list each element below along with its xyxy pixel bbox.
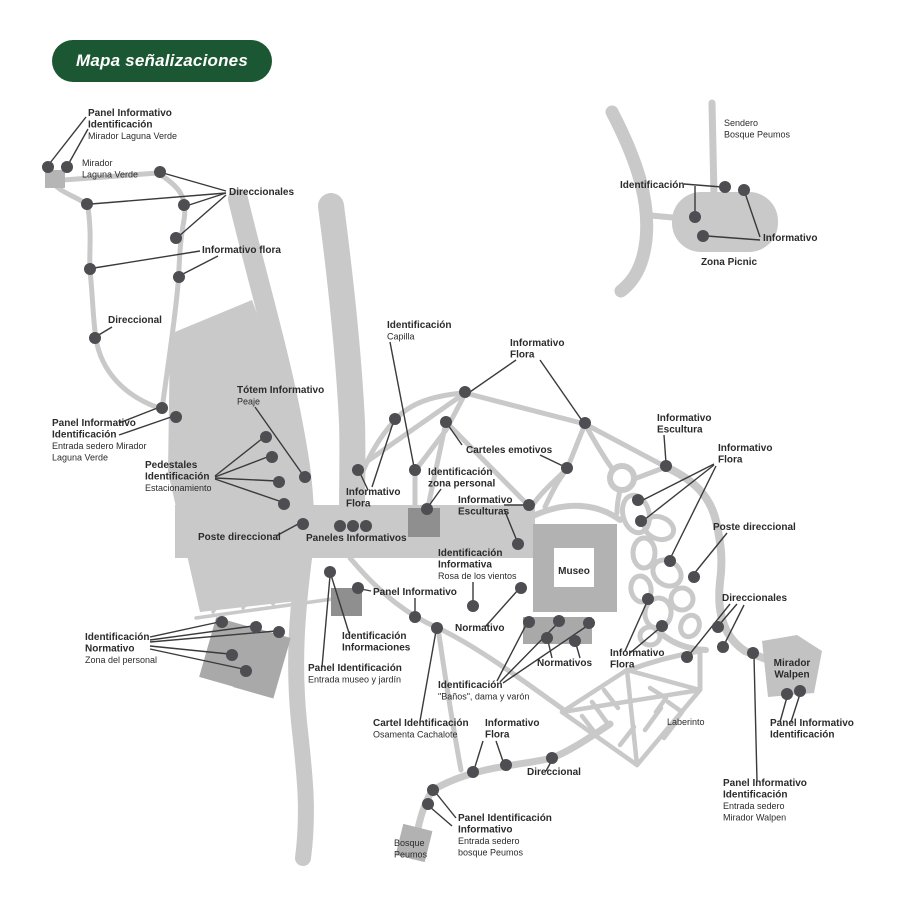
trail-laguna-verde-west xyxy=(57,187,162,409)
signage-marker-dot xyxy=(512,538,524,550)
signage-marker-dot xyxy=(216,616,228,628)
leader-line xyxy=(540,455,563,466)
signage-marker-dot xyxy=(635,515,647,527)
signage-marker-dot xyxy=(781,688,793,700)
label-identificacion-informaciones-line-2: Informaciones xyxy=(342,643,411,654)
label-panel-entrada-sedero-mirador-laguna-verde-line-2: Identificación xyxy=(52,430,116,441)
label-panel-informativo-mirador-laguna-verde-line-1: Panel Informativo xyxy=(88,108,172,119)
label-panel-informativo-centro-line-1: Panel Informativo xyxy=(373,587,457,598)
leader-line xyxy=(50,117,86,163)
signage-marker-dot xyxy=(324,566,336,578)
signage-marker-dot xyxy=(688,571,700,583)
trail-sendero-bosque-peumos xyxy=(712,103,714,196)
label-panel-entrada-sedero-bosque-peumos-line-3: Entrada sedero xyxy=(458,836,520,846)
map-name-zona-picnic-line-1: Zona Picnic xyxy=(701,257,758,268)
label-panel-informativo-mirador-laguna-verde-line-2: Identificación xyxy=(88,120,152,131)
signage-marker-dot xyxy=(173,271,185,283)
signage-marker-dot xyxy=(409,611,421,623)
signage-marker-dot xyxy=(515,582,527,594)
label-totem-informativo-peaje-line-1: Tótem Informativo xyxy=(237,385,324,396)
label-panel-entrada-sedero-mirador-laguna-verde-line-1: Panel Informativo xyxy=(52,418,136,429)
label-informativo-escultura-line-2: Escultura xyxy=(657,425,703,436)
signage-marker-dot xyxy=(260,431,272,443)
map-canvas: Mapa señalizaciones xyxy=(0,0,909,900)
label-identificacion-informativa-rosa-line-2: Informativa xyxy=(438,560,492,571)
label-identificacion-picnic-line-1: Identificación xyxy=(620,180,684,191)
label-direccionales-sureste-line-1: Direccionales xyxy=(722,593,787,604)
signage-marker-dot xyxy=(656,620,668,632)
label-paneles-informativos-line-1: Paneles Informativos xyxy=(306,533,407,544)
signage-marker-dot xyxy=(266,451,278,463)
roundabout xyxy=(610,466,634,490)
label-panel-informativo-walpen-line-1: Panel Informativo xyxy=(770,718,854,729)
signage-marker-dot xyxy=(297,518,309,530)
map-name-sendero-bosque-peumos-line-2: Bosque Peumos xyxy=(724,130,791,140)
leader-line xyxy=(474,741,483,770)
signage-marker-dot xyxy=(89,332,101,344)
signage-marker-dot xyxy=(553,615,565,627)
signage-marker-dot xyxy=(632,494,644,506)
label-informativo-escultura-line-1: Informativo xyxy=(657,413,711,424)
label-panel-identificacion-entrada-museo-line-1: Panel Identificación xyxy=(308,663,402,674)
signage-marker-dot xyxy=(352,582,364,594)
leader-line xyxy=(181,256,218,275)
label-direccional-oeste-line-1: Direccional xyxy=(108,315,162,326)
signage-marker-dot xyxy=(226,649,238,661)
leader-line xyxy=(485,590,518,627)
leader-line xyxy=(91,193,226,204)
map-name-mirador-laguna-verde-line-2: Laguna Verde xyxy=(82,170,138,180)
buildings-layer xyxy=(45,170,822,862)
signage-marker-dot xyxy=(334,520,346,532)
signage-marker-dot xyxy=(240,665,252,677)
map-name-museo-line-1: Museo xyxy=(558,566,590,577)
label-informativo-flora-oeste-line-2: Flora xyxy=(346,499,371,510)
label-identificacion-informativa-rosa-line-3: Rosa de los vientos xyxy=(438,571,517,581)
label-informativo-flora-sur-line-2: Flora xyxy=(485,730,510,741)
signage-marker-dot xyxy=(719,181,731,193)
signage-marker-dot xyxy=(81,198,93,210)
leader-line xyxy=(420,631,436,721)
signage-marker-dot xyxy=(389,413,401,425)
label-informativo-flora-capilla-line-1: Informativo xyxy=(510,338,564,349)
label-informativo-picnic-line-1: Informativo xyxy=(763,233,817,244)
label-panel-entrada-sedero-walpen-line-2: Identificación xyxy=(723,790,787,801)
signage-marker-dot xyxy=(689,211,701,223)
signage-marker-dot xyxy=(431,622,443,634)
signage-marker-dot xyxy=(583,617,595,629)
label-informativo-flora-capilla-line-2: Flora xyxy=(510,350,535,361)
signage-marker-dot xyxy=(579,417,591,429)
map-name-mirador-walpen-line-1: Mirador xyxy=(774,658,811,669)
signage-marker-dot xyxy=(360,520,372,532)
signage-marker-dot xyxy=(717,641,729,653)
map-name-bosque-peumos-line-2: Peumos xyxy=(394,850,428,860)
label-direccional-sur-line-1: Direccional xyxy=(527,767,581,778)
signage-marker-dot xyxy=(500,759,512,771)
signage-marker-dot xyxy=(546,752,558,764)
signage-marker-dot xyxy=(523,499,535,511)
map-name-mirador-laguna-verde-line-1: Mirador xyxy=(82,158,113,168)
label-panel-entrada-sedero-walpen-line-1: Panel Informativo xyxy=(723,778,807,789)
signage-marker-dot xyxy=(170,232,182,244)
signage-marker-dot xyxy=(569,635,581,647)
signage-marker-dot xyxy=(459,386,471,398)
label-identificacion-banos-line-1: Identificación xyxy=(438,680,502,691)
label-identificacion-banos-line-2: "Baños", dama y varón xyxy=(438,692,529,702)
label-pedestales-estacionamiento-line-3: Estacionamiento xyxy=(145,483,212,493)
map-name-sendero-bosque-peumos-line-1: Sendero xyxy=(724,118,758,128)
label-informativo-flora-esculturas-zona-line-2: Flora xyxy=(610,660,635,671)
label-poste-direccional-este-line-1: Poste direccional xyxy=(713,522,796,533)
signage-marker-dot xyxy=(440,416,452,428)
signage-marker-dot xyxy=(738,184,750,196)
leader-line xyxy=(664,435,666,463)
label-identificacion-informaciones-line-1: Identificación xyxy=(342,631,406,642)
label-pedestales-estacionamiento-line-1: Pedestales xyxy=(145,460,198,471)
label-poste-direccional-oeste-line-1: Poste direccional xyxy=(198,532,281,543)
signage-marker-dot xyxy=(642,593,654,605)
label-cartel-osamenta-cachalote-line-2: Osamenta Cachalote xyxy=(373,730,458,740)
map-name-bosque-peumos-line-1: Bosque xyxy=(394,838,425,848)
signage-marker-dot xyxy=(747,647,759,659)
label-informativo-flora-norte-line-1: Informativo flora xyxy=(202,245,281,256)
signage-marker-dot xyxy=(170,411,182,423)
label-identificacion-informativa-rosa-line-1: Identificación xyxy=(438,548,502,559)
label-normativos-line-1: Normativos xyxy=(537,658,592,669)
map-name-mirador-walpen-line-2: Walpen xyxy=(774,670,809,681)
garden-mesh-inner-3 xyxy=(532,424,585,507)
map-name-laberinto-line-1: Laberinto xyxy=(667,717,705,727)
signage-marker-dot xyxy=(278,498,290,510)
label-panel-entrada-sedero-bosque-peumos-line-2: Informativo xyxy=(458,825,512,836)
signage-marker-dot xyxy=(347,520,359,532)
label-panel-entrada-sedero-mirador-laguna-verde-line-3: Entrada sedero Mirador xyxy=(52,441,147,451)
signage-marker-dot xyxy=(409,464,421,476)
signage-marker-dot xyxy=(794,685,806,697)
signage-marker-dot xyxy=(299,471,311,483)
signage-marker-dot xyxy=(681,651,693,663)
signage-marker-dot xyxy=(541,632,553,644)
label-informativo-flora-este-line-1: Informativo xyxy=(718,443,772,454)
leader-line xyxy=(94,251,200,268)
label-informativo-flora-sur-line-1: Informativo xyxy=(485,718,539,729)
signage-marker-dot xyxy=(427,784,439,796)
label-panel-entrada-sedero-bosque-peumos-line-4: bosque Peumos xyxy=(458,848,524,858)
label-informativo-esculturas-line-1: Informativo xyxy=(458,495,512,506)
label-totem-informativo-peaje-line-2: Peaje xyxy=(237,397,260,407)
road-picnic-curve xyxy=(612,112,647,291)
label-panel-entrada-sedero-walpen-line-3: Entrada sedero xyxy=(723,801,785,811)
signage-marker-dot xyxy=(660,460,672,472)
label-direccionales-norte-line-1: Direccionales xyxy=(229,187,294,198)
signage-marker-dot xyxy=(61,161,73,173)
label-identificacion-zona-personal-line-1: Identificación xyxy=(428,467,492,478)
label-panel-informativo-mirador-laguna-verde-line-3: Mirador Laguna Verde xyxy=(88,131,177,141)
signage-marker-dot xyxy=(250,621,262,633)
leader-line xyxy=(467,360,516,394)
label-identificacion-normativo-zona-personal-line-1: Identificación xyxy=(85,632,149,643)
signage-marker-dot xyxy=(697,230,709,242)
label-identificacion-normativo-zona-personal-line-3: Zona del personal xyxy=(85,655,157,665)
label-informativo-flora-este-line-2: Flora xyxy=(718,455,743,466)
label-identificacion-normativo-zona-personal-line-2: Normativo xyxy=(85,644,134,655)
signage-marker-dot xyxy=(523,616,535,628)
road-access-east xyxy=(331,206,352,515)
label-pedestales-estacionamiento-line-2: Identificación xyxy=(145,472,209,483)
signage-marker-dot xyxy=(421,503,433,515)
signage-marker-dot xyxy=(422,798,434,810)
label-panel-informativo-walpen-line-2: Identificación xyxy=(770,730,834,741)
signage-marker-dot xyxy=(156,402,168,414)
label-identificacion-capilla-line-2: Capilla xyxy=(387,332,415,342)
signage-marker-dot xyxy=(467,766,479,778)
label-panel-entrada-sedero-walpen-line-4: Mirador Walpen xyxy=(723,813,786,823)
label-identificacion-capilla-line-1: Identificación xyxy=(387,320,451,331)
signage-marker-dot xyxy=(352,464,364,476)
signage-marker-dot xyxy=(467,600,479,612)
label-panel-identificacion-entrada-museo-line-2: Entrada museo y jardín xyxy=(308,675,401,685)
leader-line xyxy=(754,656,757,781)
park-map-svg: Panel InformativoIdentificaciónMirador L… xyxy=(0,0,909,900)
signage-marker-dot xyxy=(178,199,190,211)
signage-marker-dot xyxy=(561,462,573,474)
signage-marker-dot xyxy=(664,555,676,567)
label-informativo-esculturas-line-2: Esculturas xyxy=(458,507,510,518)
label-informativo-flora-esculturas-zona-line-1: Informativo xyxy=(610,648,664,659)
label-cartel-osamenta-cachalote-line-1: Cartel Identificación xyxy=(373,718,469,729)
leader-line xyxy=(322,576,330,667)
signage-marker-dot xyxy=(84,263,96,275)
label-panel-entrada-sedero-mirador-laguna-verde-line-4: Laguna Verde xyxy=(52,453,108,463)
signage-marker-dot xyxy=(712,621,724,633)
label-identificacion-zona-personal-line-2: zona personal xyxy=(428,479,495,490)
label-carteles-emotivos-line-1: Carteles emotivos xyxy=(466,445,553,456)
signage-marker-dot xyxy=(273,476,285,488)
label-normativo-line-1: Normativo xyxy=(455,623,504,634)
path-museum-north xyxy=(533,506,620,520)
label-informativo-flora-oeste-line-1: Informativo xyxy=(346,487,400,498)
signage-marker-dot xyxy=(154,166,166,178)
signage-marker-dot xyxy=(42,161,54,173)
label-panel-entrada-sedero-bosque-peumos-line-1: Panel Identificación xyxy=(458,813,552,824)
signage-marker-dot xyxy=(273,626,285,638)
